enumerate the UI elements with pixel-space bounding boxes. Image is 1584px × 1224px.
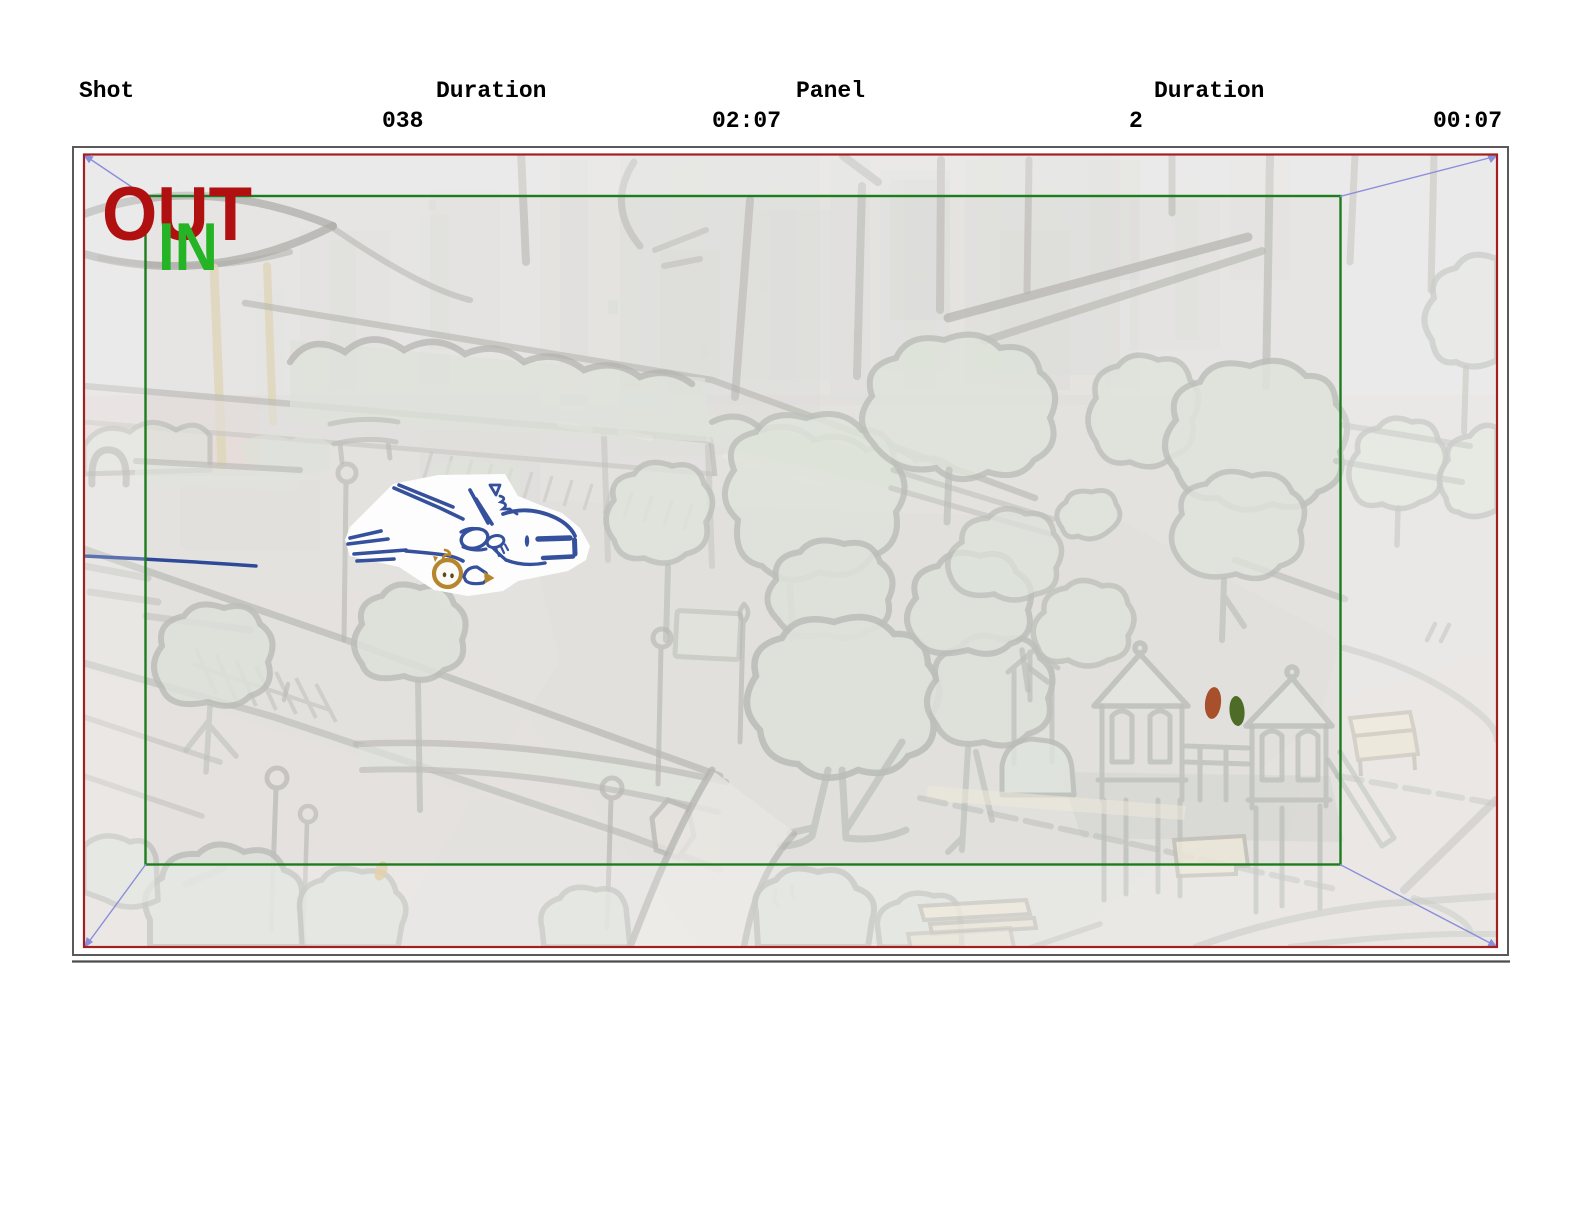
svg-text:Duration: Duration bbox=[1154, 78, 1264, 104]
svg-text:00:07: 00:07 bbox=[1433, 108, 1502, 134]
svg-text:IN: IN bbox=[158, 209, 218, 285]
svg-text:02:07: 02:07 bbox=[712, 108, 781, 134]
svg-text:Panel: Panel bbox=[796, 78, 865, 104]
svg-text:Duration: Duration bbox=[436, 78, 546, 104]
svg-text:Shot: Shot bbox=[79, 78, 134, 104]
svg-text:038: 038 bbox=[382, 108, 423, 134]
svg-text:2: 2 bbox=[1129, 108, 1143, 134]
